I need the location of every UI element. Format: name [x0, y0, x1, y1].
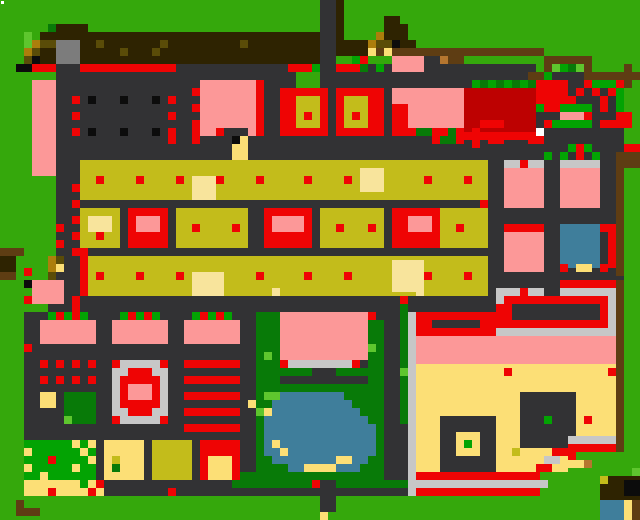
map-viewport — [0, 0, 640, 520]
town-map-canvas[interactable] — [0, 0, 640, 520]
